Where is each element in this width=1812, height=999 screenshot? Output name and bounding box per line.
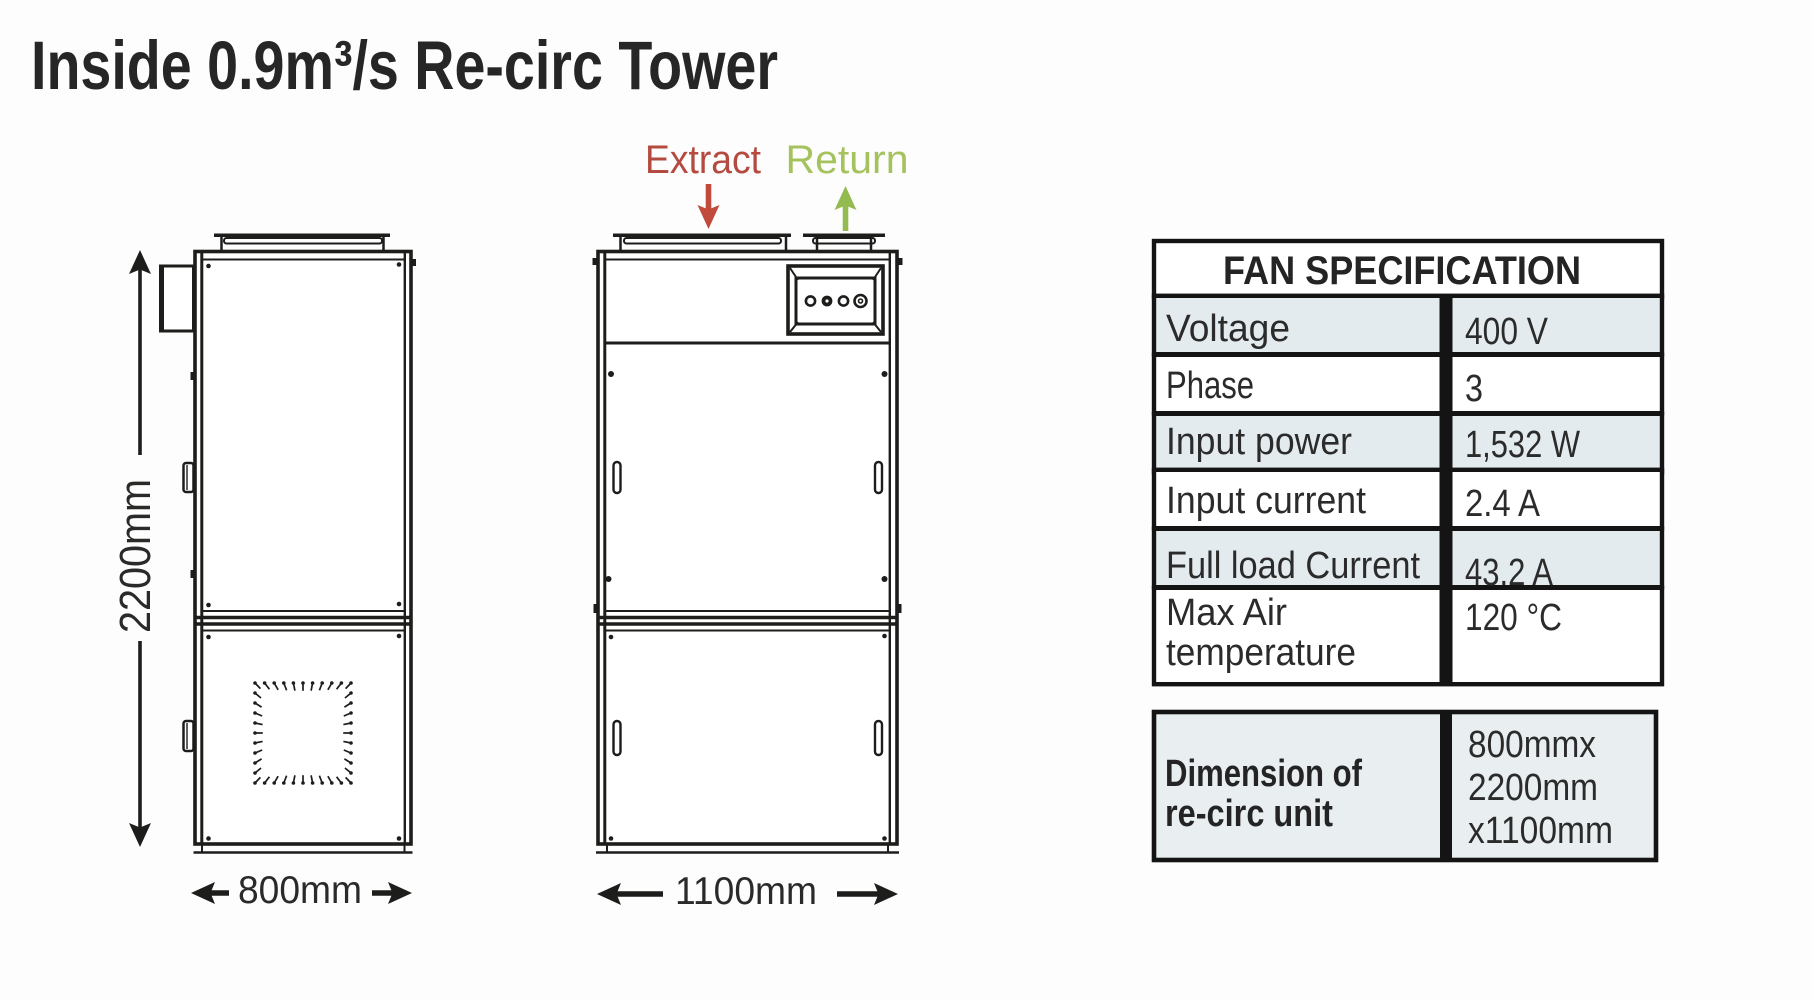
svg-text:800mm: 800mm: [238, 869, 362, 912]
svg-text:3: 3: [1465, 368, 1483, 410]
svg-text:1100mm: 1100mm: [675, 870, 817, 913]
svg-text:Inside 0.9m³/s Re-circ Tower: Inside 0.9m³/s Re-circ Tower: [31, 27, 778, 104]
svg-text:Input current: Input current: [1166, 480, 1366, 522]
svg-text:Input power: Input power: [1166, 421, 1352, 463]
svg-text:120 °C: 120 °C: [1465, 597, 1562, 639]
svg-text:Dimension of: Dimension of: [1165, 753, 1362, 795]
svg-text:x1100mm: x1100mm: [1468, 810, 1613, 852]
svg-text:800mmx: 800mmx: [1468, 724, 1596, 766]
svg-text:2200mm: 2200mm: [111, 479, 160, 633]
svg-text:1,532 W: 1,532 W: [1465, 424, 1580, 466]
svg-text:2.4 A: 2.4 A: [1465, 483, 1541, 525]
svg-text:Extract: Extract: [645, 138, 761, 182]
svg-text:Max Air: Max Air: [1166, 592, 1287, 634]
svg-text:Phase: Phase: [1166, 365, 1254, 407]
svg-text:FAN SPECIFICATION: FAN SPECIFICATION: [1223, 249, 1581, 293]
svg-text:re-circ unit: re-circ unit: [1165, 793, 1333, 835]
svg-text:2200mm: 2200mm: [1468, 767, 1598, 809]
svg-text:400 V: 400 V: [1465, 311, 1549, 353]
svg-text:Return: Return: [786, 138, 909, 182]
svg-text:temperature: temperature: [1166, 632, 1356, 674]
svg-text:Voltage: Voltage: [1166, 308, 1290, 350]
svg-text:Full load Current: Full load Current: [1166, 545, 1420, 587]
